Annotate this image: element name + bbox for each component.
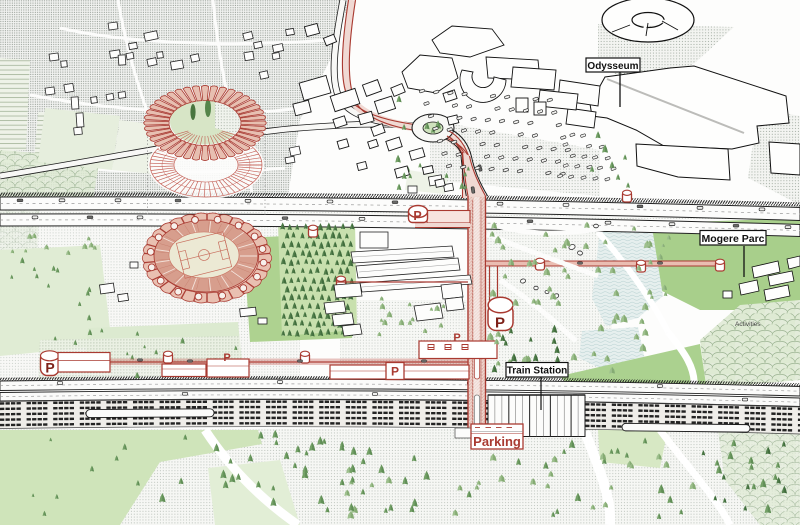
svg-text:P: P [223,352,230,364]
svg-text:P: P [413,209,421,223]
svg-text:P: P [453,332,460,344]
svg-text:Parking: Parking [473,434,521,449]
svg-text:Train Station: Train Station [507,366,568,377]
svg-text:Mogere Parc: Mogere Parc [701,233,764,245]
svg-text:Activities: Activities [735,321,761,328]
svg-text:P: P [45,360,54,376]
svg-text:Odysseum: Odysseum [587,61,638,72]
svg-text:P: P [495,315,505,332]
svg-text:P: P [391,365,399,379]
